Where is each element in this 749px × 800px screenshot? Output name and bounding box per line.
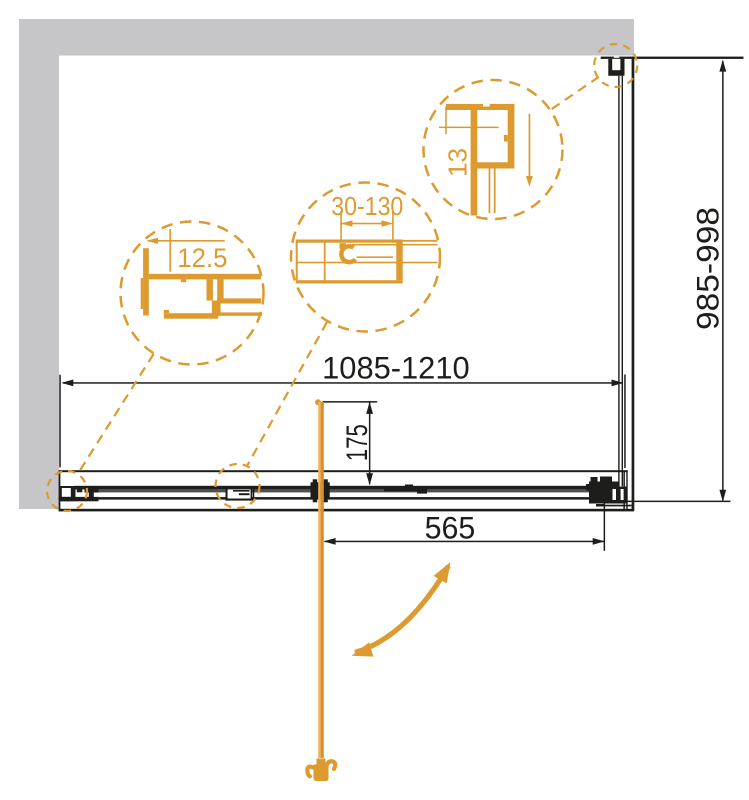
svg-text:175: 175 bbox=[341, 424, 374, 461]
svg-text:565: 565 bbox=[425, 510, 476, 546]
svg-text:30-130: 30-130 bbox=[331, 191, 403, 221]
svg-text:1085-1210: 1085-1210 bbox=[322, 350, 470, 386]
svg-text:985-998: 985-998 bbox=[690, 207, 726, 330]
svg-text:12.5: 12.5 bbox=[177, 243, 227, 273]
svg-text:13: 13 bbox=[443, 148, 473, 177]
